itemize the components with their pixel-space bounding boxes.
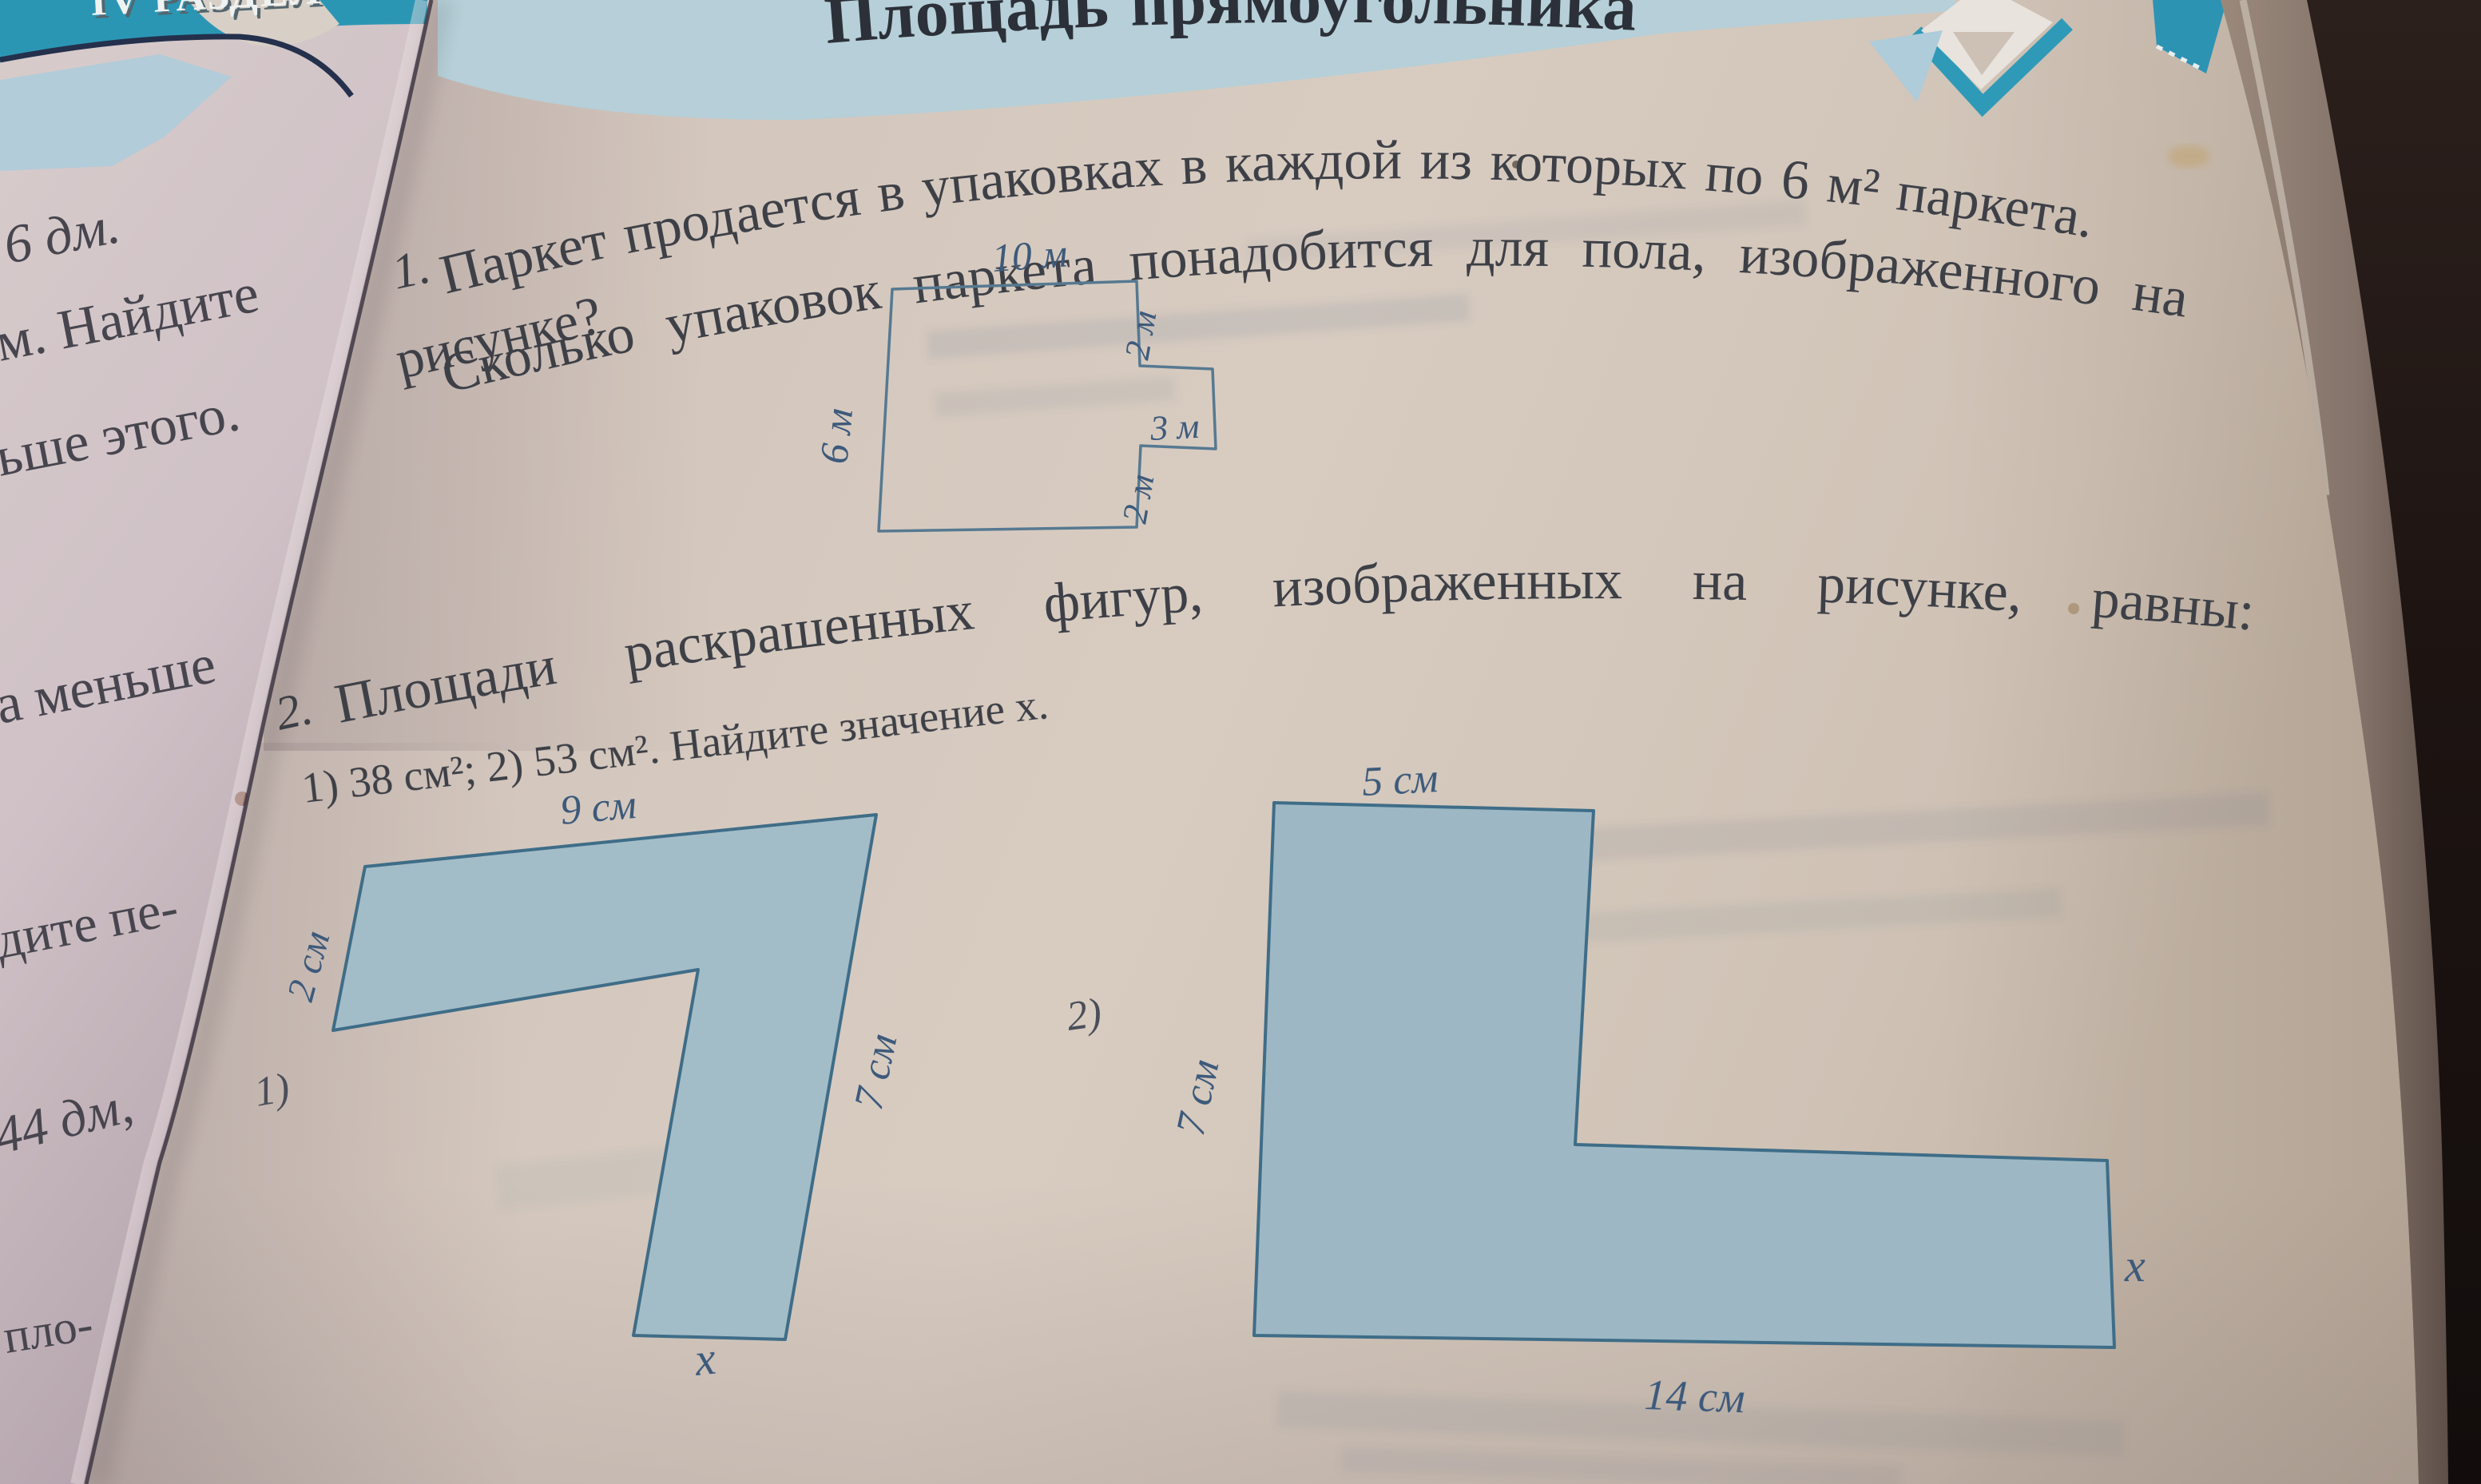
figure2-label-right-x: x [2124,1240,2146,1292]
plan-label-notch: 3 м [1149,407,1201,448]
photo-canvas: Площадь прямоугольника 1. Паркет продает [0,0,2481,1484]
figure1-label-top: 9 см [558,782,638,834]
plan-label-left: 6 м [811,406,861,466]
plan-label-top: 10 м [990,231,1069,280]
figure2-label-top: 5 см [1361,756,1439,805]
photo-textbook-spread: Площадь прямоугольника 1. Паркет продает [0,0,2481,1484]
figure2-label-bottom: 14 см [1644,1371,1746,1422]
paper-stain [2168,145,2209,168]
plan-label-right-bottom: 2 м [1115,471,1162,526]
plan-label-right-top: 2 м [1117,308,1165,363]
figure2-caption: 2) [1064,990,1105,1039]
